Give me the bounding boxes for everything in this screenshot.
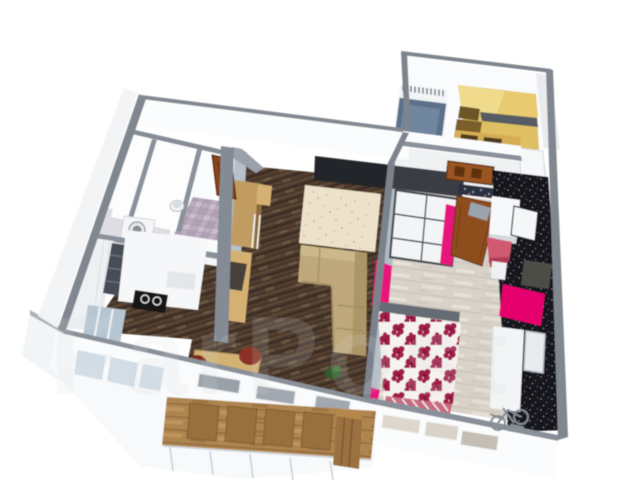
- svg-text:FarPost: FarPost: [50, 295, 516, 418]
